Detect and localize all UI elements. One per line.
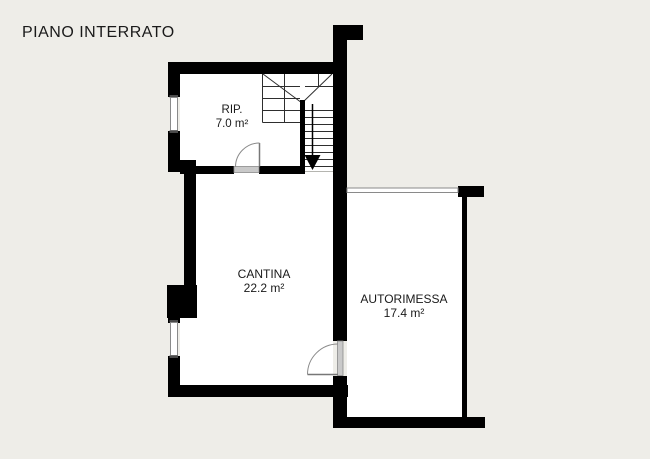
wall-left-rip-lower (168, 131, 180, 162)
room-label-cantina: CANTINA 22.2 m² (214, 268, 314, 295)
stair-center-post (300, 100, 305, 168)
page-title: PIANO INTERRATO (22, 24, 175, 42)
room-area: 22.2 m² (214, 282, 314, 296)
floorplan-canvas: PIANO INTERRATO RIP. 7.0 m² CANTINA 22.2… (0, 0, 650, 459)
wall-left-cantina-upper (184, 172, 196, 286)
door-threshold (338, 341, 344, 376)
room-name: CANTINA (214, 268, 314, 282)
window-cap (170, 131, 179, 134)
wall-garage-pier (458, 186, 484, 197)
room-area: 7.0 m² (182, 118, 282, 132)
wall-bottom-cantina (168, 385, 348, 397)
window-cap (170, 356, 179, 359)
room-area: 17.4 m² (345, 307, 463, 321)
room-label-autorimessa: AUTORIMESSA 17.4 m² (345, 293, 463, 320)
wall-divider-rip-right (259, 166, 305, 174)
room-name: AUTORIMESSA (345, 293, 463, 307)
wall-divider-rip-left (180, 166, 234, 174)
window-glass (171, 323, 178, 356)
window-glass (171, 98, 178, 131)
wall-top (168, 62, 347, 74)
garage-door (347, 188, 458, 193)
window-cantina (170, 320, 179, 358)
wall-bottom-autorimessa (333, 417, 485, 428)
wall-left-pillar (167, 285, 197, 318)
window-rip (170, 95, 179, 133)
room-name: RIP. (182, 104, 282, 118)
wall-chimney-stem (333, 25, 347, 62)
room-label-rip: RIP. 7.0 m² (182, 104, 282, 131)
floorplan-drawing (0, 0, 650, 459)
wall-left-rip-upper (168, 62, 180, 97)
door-threshold (234, 167, 259, 173)
